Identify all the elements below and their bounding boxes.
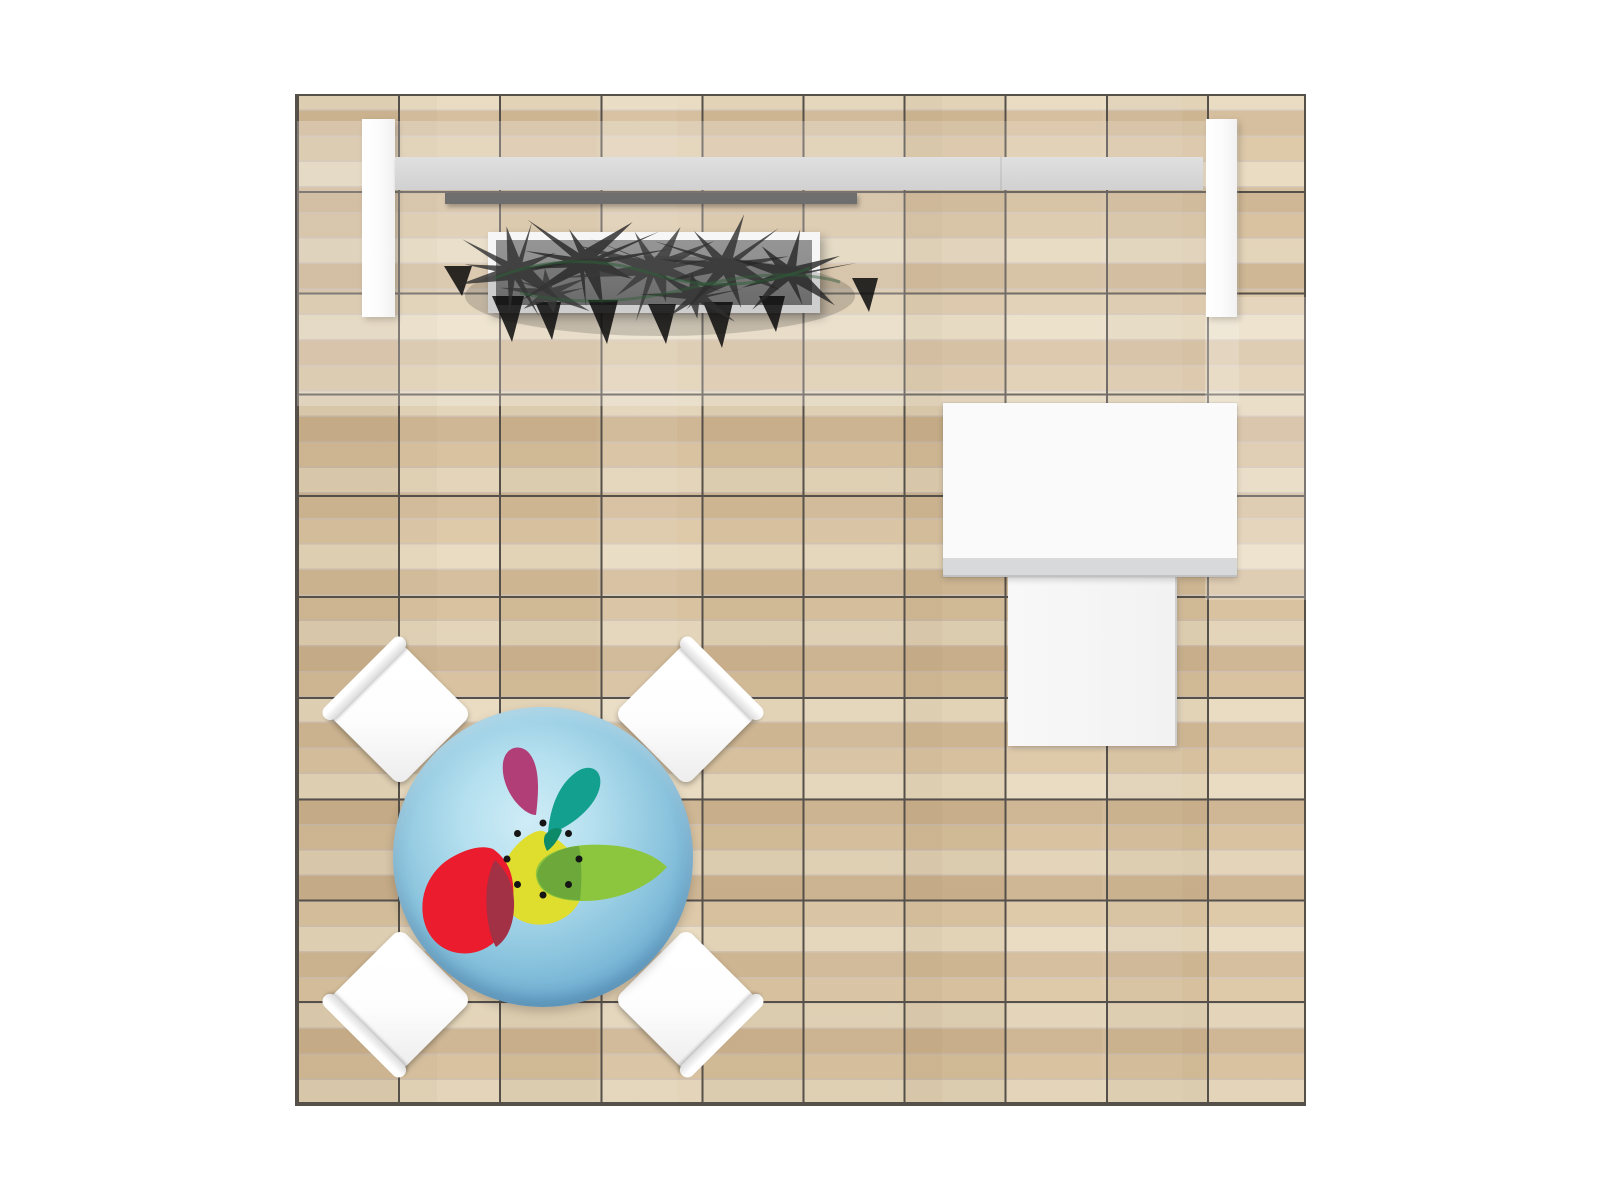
logo-dot (565, 881, 572, 888)
table-logo (393, 707, 693, 1007)
booth-floorplan (0, 0, 1600, 1200)
hedge-planter[interactable] (488, 232, 820, 313)
logo-dot (514, 881, 521, 888)
logo-dot (504, 856, 511, 863)
logo-shape-magenta-leaf (503, 748, 538, 815)
logo-dot (540, 820, 547, 827)
backwall-pillar-left[interactable] (362, 119, 395, 317)
logo-dot (514, 830, 521, 837)
backwall-pillar-right[interactable] (1206, 119, 1237, 317)
backwall-shelf[interactable] (445, 193, 857, 204)
logo-shape-teal-leaf (548, 768, 600, 833)
side-table[interactable] (1008, 577, 1177, 746)
logo-dot (565, 830, 572, 837)
logo-dot (576, 856, 583, 863)
beam-seam (1000, 157, 1002, 190)
reception-counter[interactable] (943, 403, 1237, 577)
meeting-table[interactable] (393, 707, 693, 1007)
backwall-beam[interactable] (395, 157, 1203, 190)
counter-front-strip (943, 558, 1237, 577)
logo-dot (540, 892, 547, 899)
